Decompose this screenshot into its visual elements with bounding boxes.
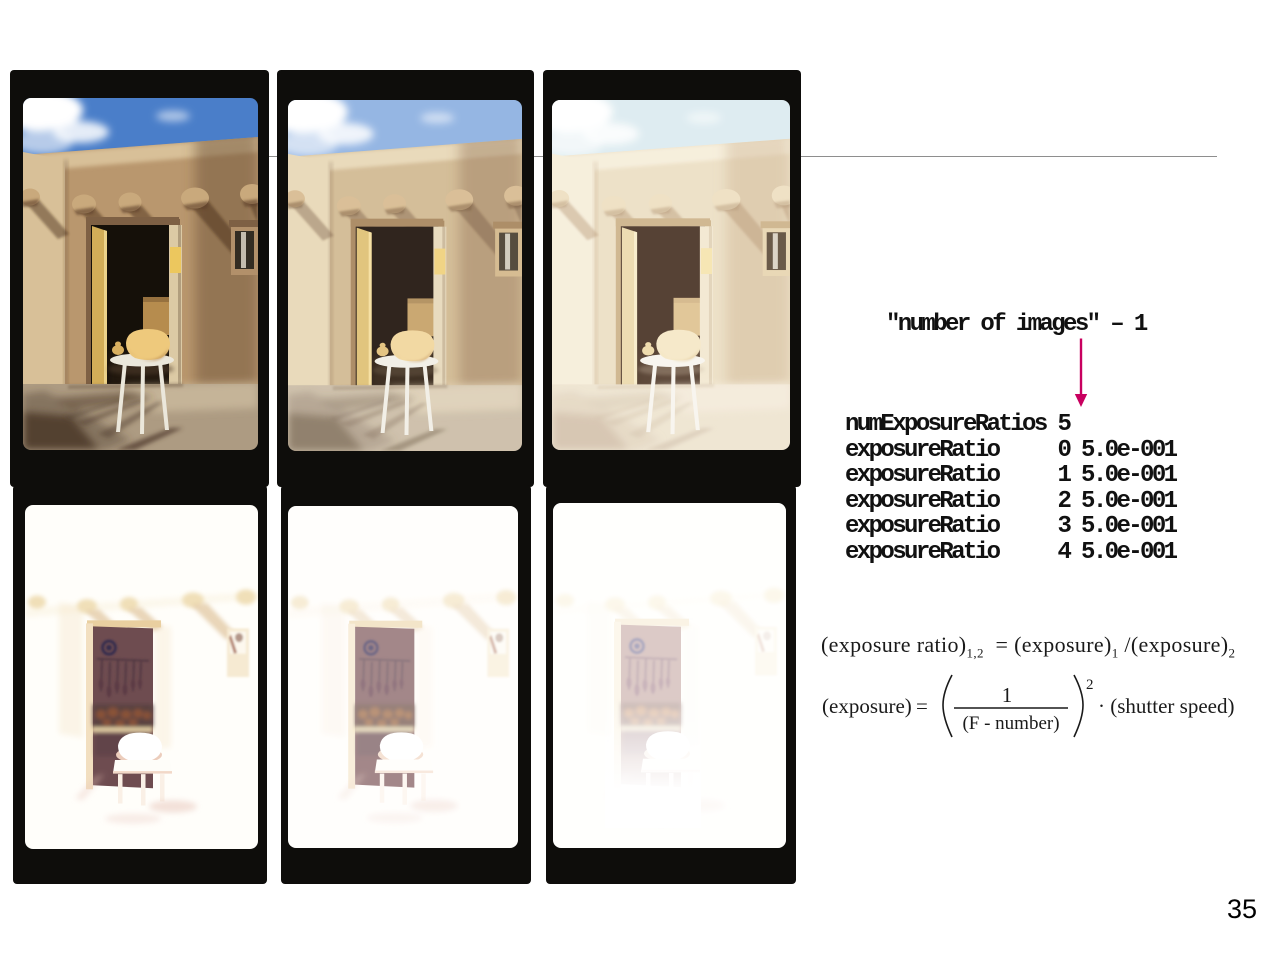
svg-text:(F - number): (F - number)	[962, 713, 1059, 734]
svg-text:2: 2	[1086, 677, 1094, 693]
svg-text:(exposure) =: (exposure) =	[822, 694, 928, 718]
svg-text:· (shutter speed): · (shutter speed)	[1098, 694, 1234, 718]
svg-text:1: 1	[1002, 683, 1013, 707]
